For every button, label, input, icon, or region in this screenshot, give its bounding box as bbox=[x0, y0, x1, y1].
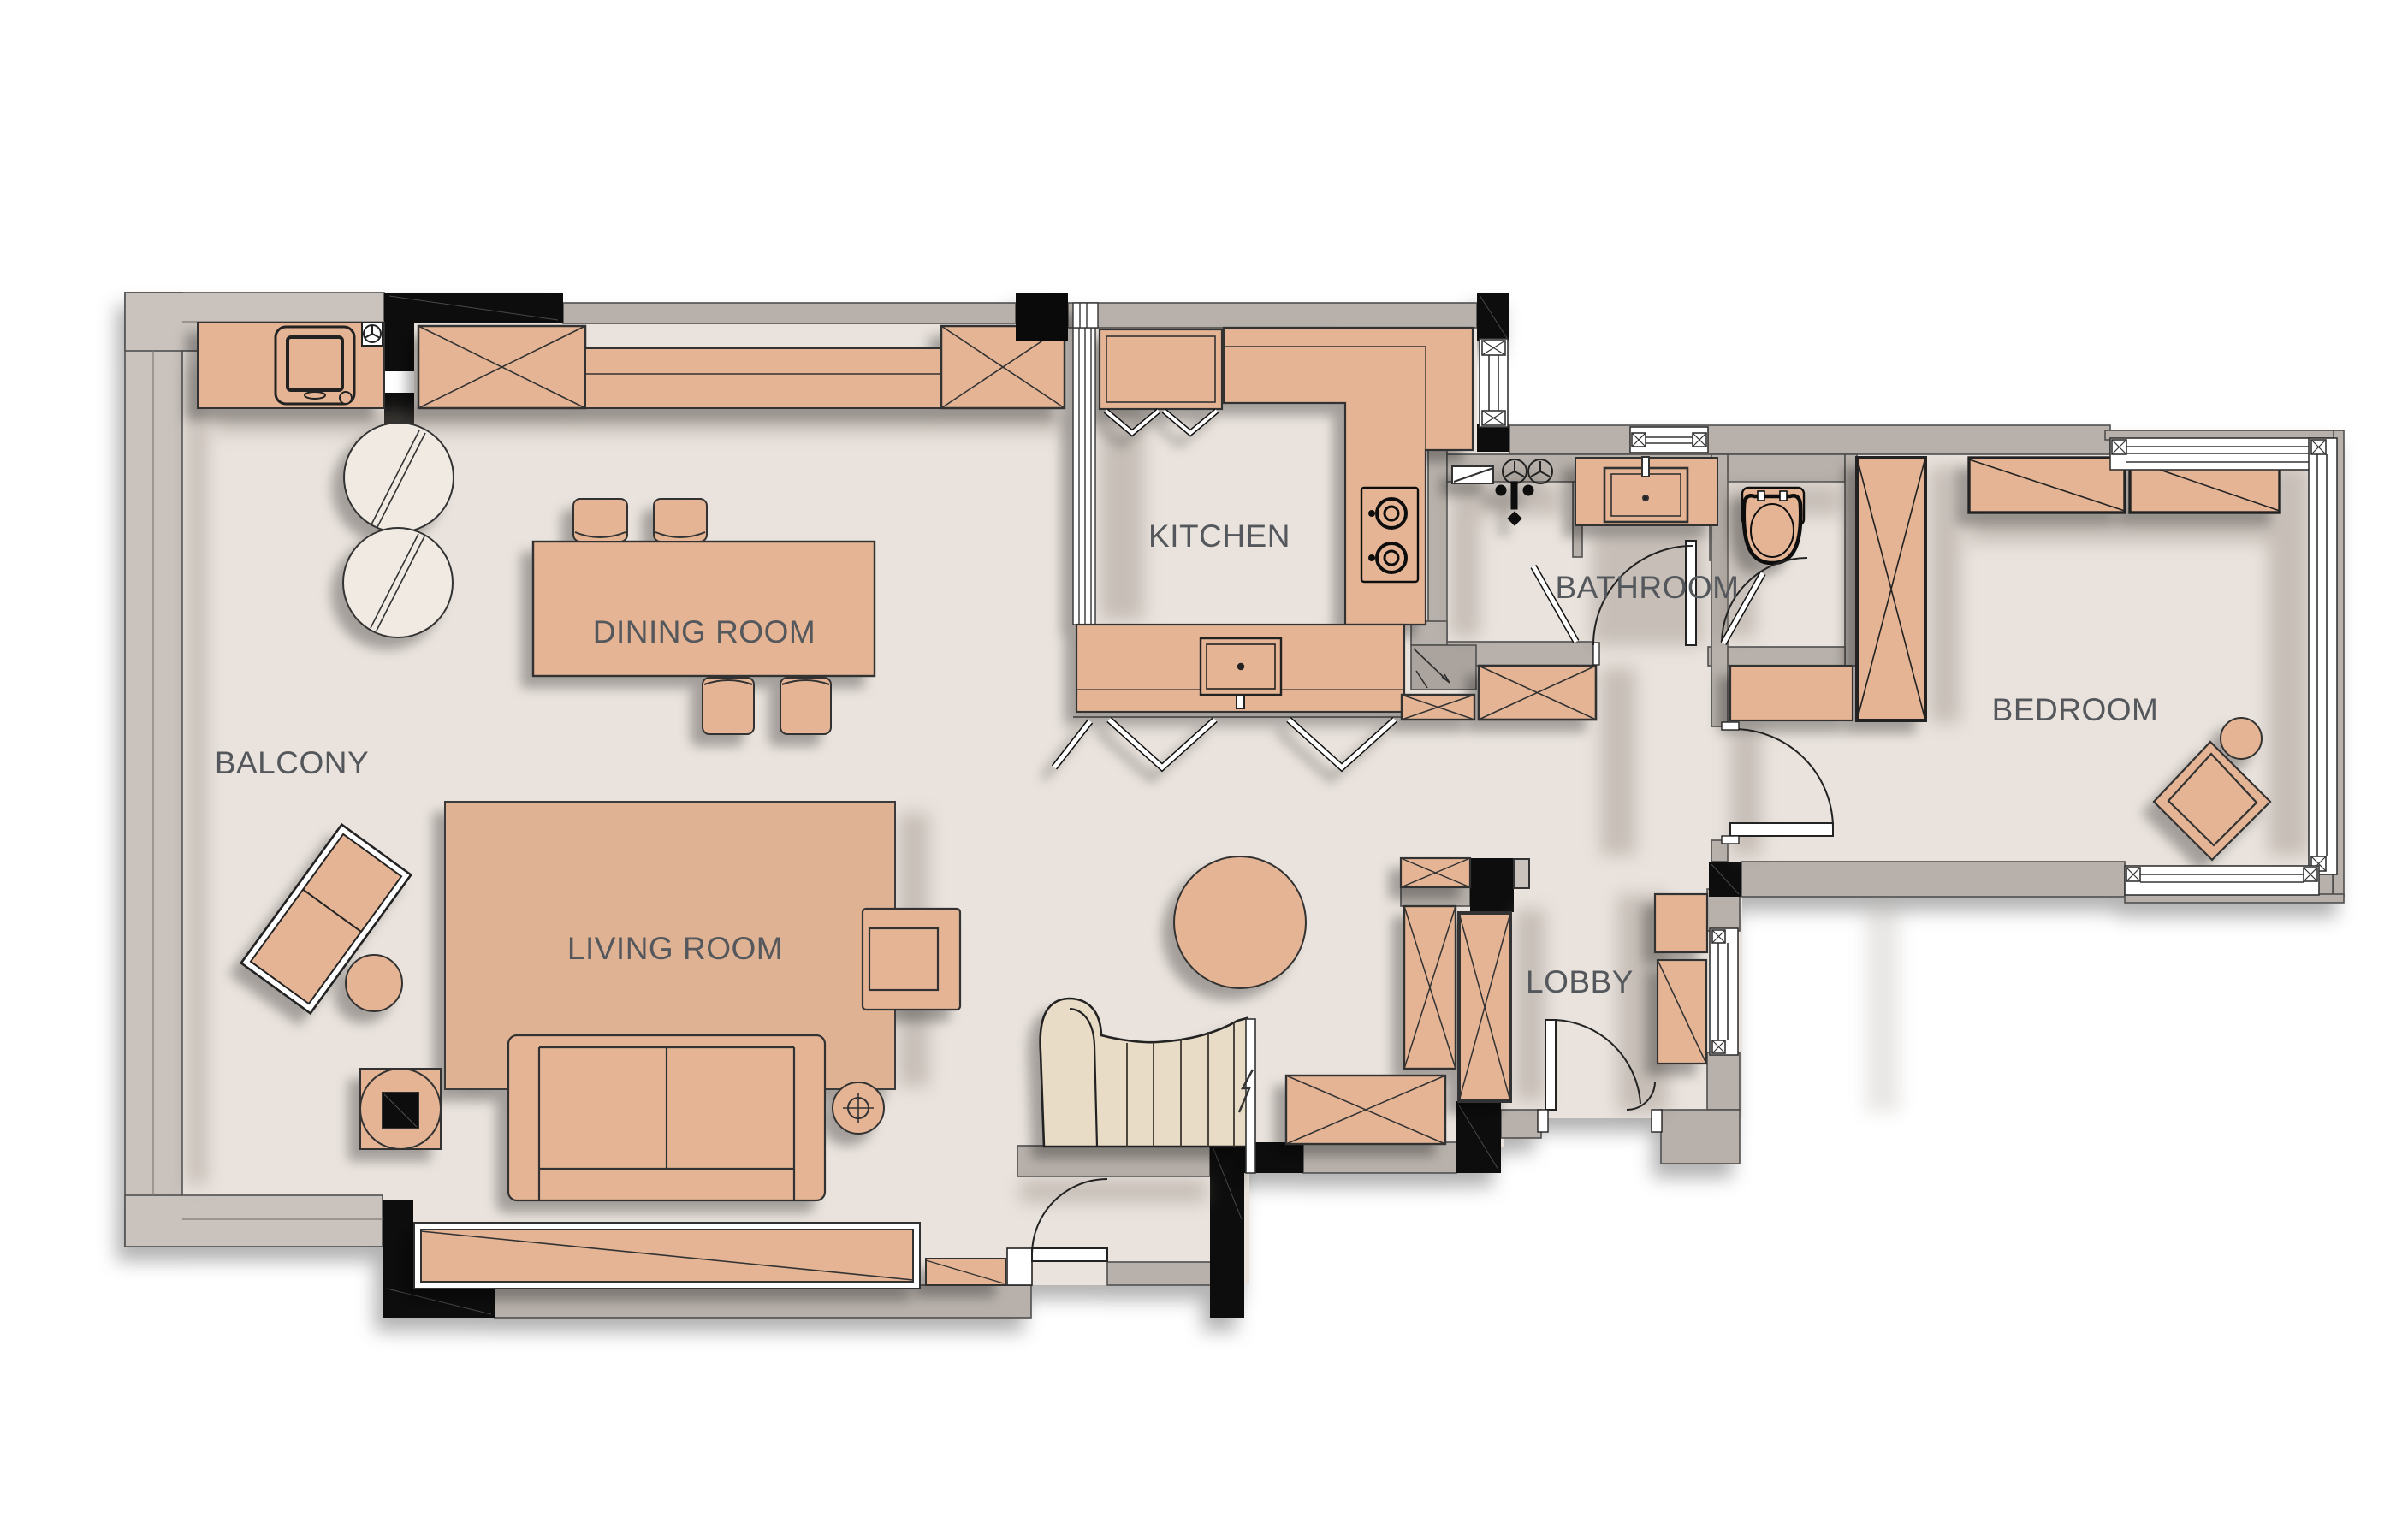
svg-text:BATHROOM: BATHROOM bbox=[1555, 570, 1739, 605]
svg-text:BALCONY: BALCONY bbox=[215, 745, 369, 780]
svg-text:LOBBY: LOBBY bbox=[1526, 964, 1634, 999]
svg-text:KITCHEN: KITCHEN bbox=[1148, 519, 1290, 554]
svg-text:LIVING ROOM: LIVING ROOM bbox=[567, 931, 783, 966]
svg-text:DINING ROOM: DINING ROOM bbox=[593, 614, 816, 649]
svg-text:BEDROOM: BEDROOM bbox=[1992, 692, 2159, 727]
